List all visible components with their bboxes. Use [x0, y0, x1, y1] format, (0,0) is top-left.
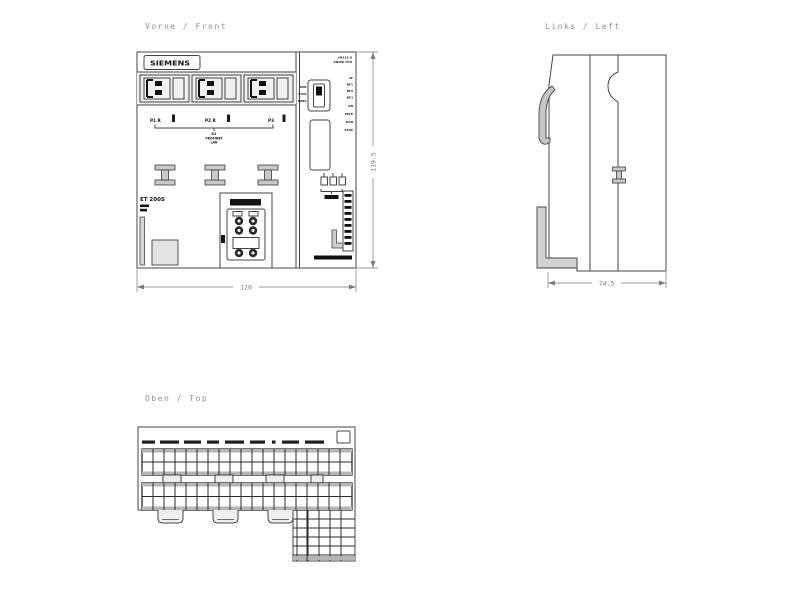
led-label: BF3	[347, 96, 353, 100]
voltage-label-smudge	[325, 195, 339, 199]
terminal-grid-lower	[142, 483, 352, 510]
mounting-foot	[537, 207, 577, 268]
release-lever-icon	[332, 230, 343, 248]
cable-connector-tabs	[158, 510, 293, 523]
top-view-drawing	[130, 415, 370, 580]
din-rail-clip	[539, 86, 555, 144]
screw-terminal-icons	[155, 165, 278, 185]
interface-sub-label: LAN	[211, 141, 218, 145]
corner-port-icon	[337, 431, 350, 443]
switch-label-stop: STOP	[298, 92, 306, 96]
led-bar-icon	[227, 115, 230, 123]
dimension-depth: 74.5	[548, 272, 666, 288]
label-pad	[152, 240, 178, 265]
led-bar-icon	[172, 115, 175, 123]
led-label: FRCE	[345, 112, 353, 116]
cpu-name-line1: IM151-8	[338, 56, 352, 60]
port-labels: P1 R P2 R P3	[150, 115, 286, 124]
screw-terminal-icon	[613, 167, 626, 183]
front-view-title: Vorne / Front	[145, 22, 227, 31]
dim-depth-value: 74.5	[599, 280, 615, 288]
port-label-p1: P1 R	[150, 118, 161, 123]
screw-terminal-icon	[205, 165, 225, 185]
port-label-p2: P2 R	[205, 118, 216, 123]
terminal-grid-extension	[293, 510, 355, 561]
memory-card-slot	[310, 120, 330, 170]
left-section-line-notched	[608, 55, 618, 271]
dim-height-value: 119.5	[370, 152, 378, 172]
port-label-p3: P3	[268, 118, 274, 123]
screw-terminal-icon	[258, 165, 278, 185]
switch-label-mres: MRES	[298, 99, 307, 103]
dimensional-drawing-canvas: Vorne / Front SIEMENS	[0, 0, 800, 600]
left-view-title: Links / Left	[545, 22, 621, 31]
led-label: ON	[348, 104, 353, 108]
dim-width-value: 120	[240, 284, 252, 292]
led-bar-icon	[283, 115, 286, 123]
screw-terminal-icon	[155, 165, 175, 185]
order-number-smudge	[314, 256, 352, 260]
led-label: RUN	[346, 120, 354, 124]
cpu-column: IM151-8 PN/DP CPU SF BF1 BF2 BF3 ON FRCE…	[298, 56, 354, 260]
profinet-interface-label: X1 PROFINET LAN	[155, 125, 273, 145]
front-view-drawing: SIEMENS	[130, 40, 400, 302]
mounting-rail-edge	[140, 217, 145, 265]
latch-icon	[221, 235, 225, 243]
led-label: STOP	[344, 128, 353, 132]
led-label: BF1	[347, 83, 353, 87]
module-subtext-smudge	[140, 209, 147, 212]
led-label: BF2	[347, 89, 353, 93]
brand-plate: SIEMENS	[144, 56, 200, 70]
module-subtext-smudge	[140, 205, 149, 208]
dimension-height: 119.5	[357, 52, 378, 268]
module-name-label: ET 200S	[140, 197, 165, 203]
interface-id-label: X1	[211, 132, 217, 136]
vent-slots	[142, 441, 324, 444]
backplane-connector	[343, 191, 353, 251]
power-supply-terminals	[321, 173, 346, 199]
mode-switch: RUN STOP MRES	[298, 80, 330, 111]
terminal-label-smudge	[230, 199, 261, 206]
port-row	[137, 72, 296, 105]
switch-label-run: RUN	[300, 85, 307, 89]
terminal-grid-upper	[142, 449, 352, 475]
cpu-name-line2: PN/DP CPU	[334, 60, 353, 64]
left-view-drawing: 74.5	[520, 40, 690, 302]
led-labels: SF BF1 BF2 BF3 ON FRCE RUN STOP	[344, 76, 353, 132]
dimension-width: 120	[137, 269, 356, 292]
left-outline	[549, 55, 666, 271]
terminal-contacts	[233, 217, 259, 257]
switch-knob-icon	[316, 87, 322, 96]
top-view-title: Oben / Top	[145, 394, 208, 403]
brand-label: SIEMENS	[150, 60, 190, 68]
power-terminal-block	[220, 193, 272, 268]
led-label: SF	[349, 76, 353, 80]
module-latch-tabs	[163, 475, 323, 483]
